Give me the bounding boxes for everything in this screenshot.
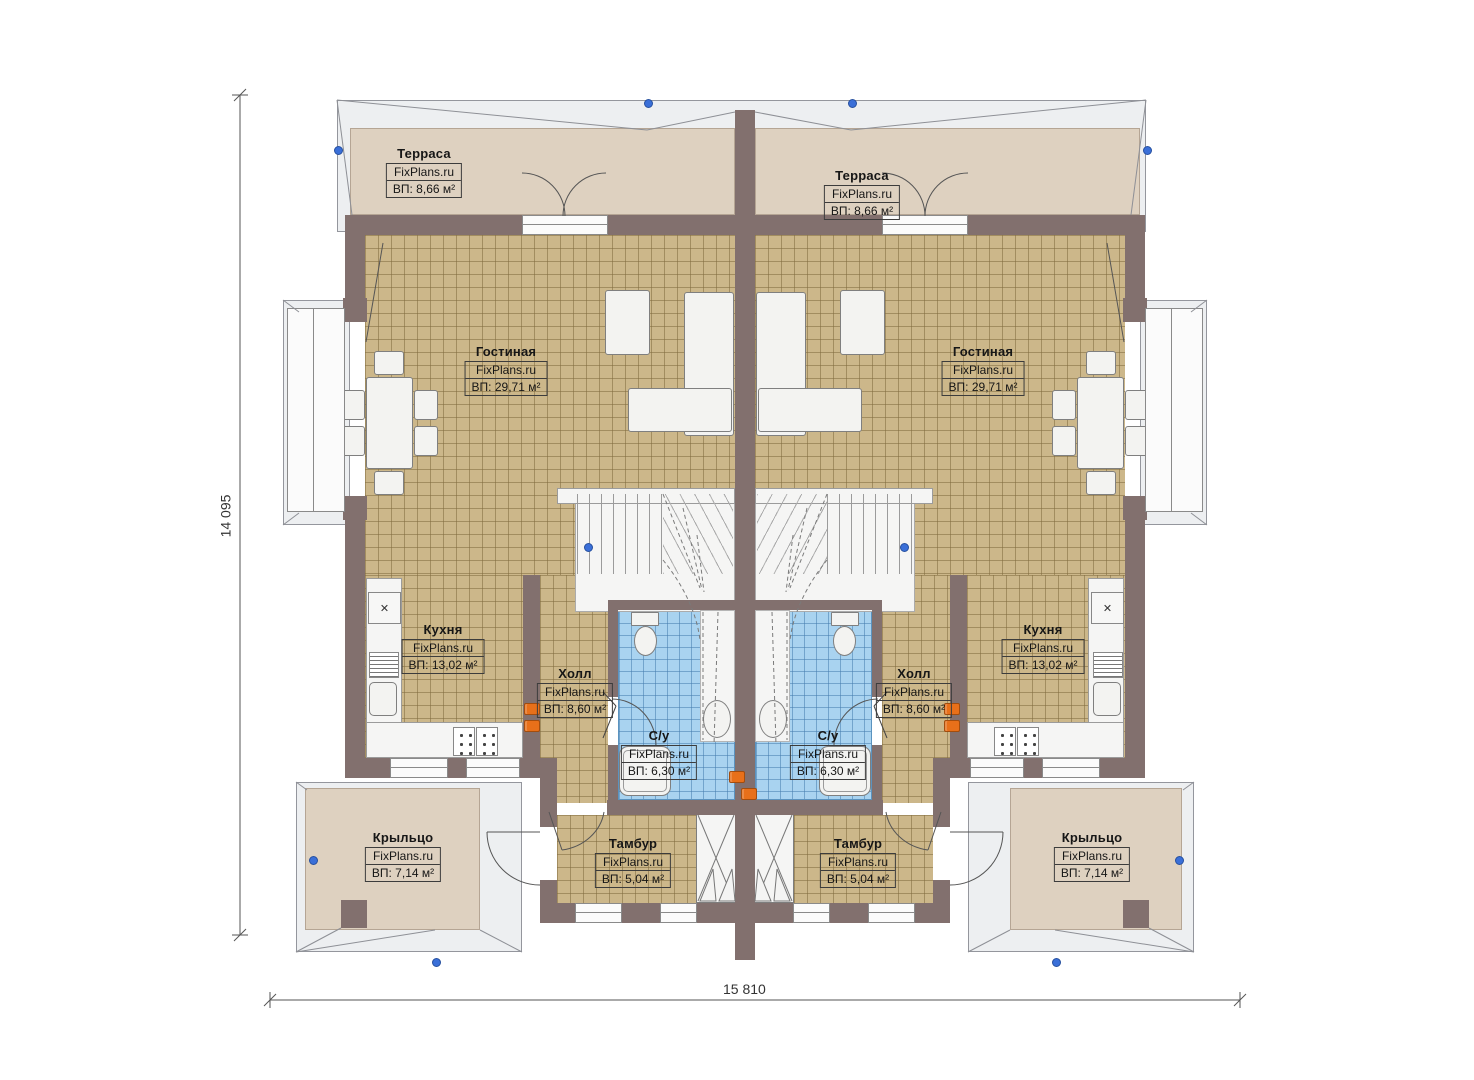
wall-bottom-kitchen-right xyxy=(1100,758,1145,778)
room-area: ВП: 8,60 м² xyxy=(538,701,612,717)
room-label-living-left: Гостиная FixPlans.ru ВП: 29,71 м² xyxy=(465,344,548,396)
watermark: FixPlans.ru xyxy=(622,746,696,763)
washbasin-icon xyxy=(703,700,731,738)
chair xyxy=(1086,471,1116,495)
room-label-porch-right: Крыльцо FixPlans.ru ВП: 7,14 м² xyxy=(1054,830,1130,882)
room-label-vestibule-right: Тамбур FixPlans.ru ВП: 5,04 м² xyxy=(820,836,896,888)
coffee-table xyxy=(840,290,885,355)
outlet-icon xyxy=(729,771,745,783)
wall-vestibule-side-left xyxy=(540,778,557,827)
watermark: FixPlans.ru xyxy=(943,362,1024,379)
watermark: FixPlans.ru xyxy=(387,164,461,181)
kitchen-window-right-1 xyxy=(970,758,1024,778)
room-area: ВП: 6,30 м² xyxy=(791,763,865,779)
watermark: FixPlans.ru xyxy=(825,186,899,203)
toilet-icon xyxy=(833,626,856,656)
dining-table xyxy=(1077,377,1124,469)
wall-hall-vestibule-left xyxy=(607,800,736,815)
terrace-door-sill-left xyxy=(522,215,608,235)
room-area: ВП: 6,30 м² xyxy=(622,763,696,779)
node-marker xyxy=(848,99,857,108)
kitchen-sink-icon xyxy=(369,682,397,716)
room-name: Холл xyxy=(537,666,613,681)
room-name: Кухня xyxy=(1002,622,1085,637)
room-label-kitchen-right: Кухня FixPlans.ru ВП: 13,02 м² xyxy=(1002,622,1085,674)
watermark: FixPlans.ru xyxy=(366,848,440,865)
chair xyxy=(1052,426,1076,456)
room-label-wc-right: С/у FixPlans.ru ВП: 6,30 м² xyxy=(790,728,866,780)
dimension-label-width: 15 810 xyxy=(723,981,766,997)
room-name: Тамбур xyxy=(595,836,671,851)
chair xyxy=(374,471,404,495)
stair-winders-right xyxy=(757,494,827,574)
outlet-icon xyxy=(524,720,540,732)
room-area: ВП: 8,66 м² xyxy=(825,203,899,219)
watermark: FixPlans.ru xyxy=(538,684,612,701)
stove-icon xyxy=(453,727,475,756)
room-label-terrace-right: Терраса FixPlans.ru ВП: 8,66 м² xyxy=(824,168,900,220)
room-name: Гостиная xyxy=(942,344,1025,359)
wall-left xyxy=(345,498,365,778)
room-area: ВП: 8,66 м² xyxy=(387,181,461,197)
outlet-icon xyxy=(741,788,757,800)
bay-wall-stub xyxy=(1123,496,1147,520)
room-name: Гостиная xyxy=(465,344,548,359)
watermark: FixPlans.ru xyxy=(1003,640,1084,657)
kitchen-counter-left-band xyxy=(366,722,523,758)
chair xyxy=(1052,390,1076,420)
washbasin-icon xyxy=(759,700,787,738)
room-label-kitchen-left: Кухня FixPlans.ru ВП: 13,02 м² xyxy=(402,622,485,674)
room-label-hall-right: Холл FixPlans.ru ВП: 8,60 м² xyxy=(876,666,952,718)
kitchen-window-right-2 xyxy=(1042,758,1100,778)
node-marker xyxy=(900,543,909,552)
chair xyxy=(1086,351,1116,375)
wall-party-center xyxy=(735,110,755,960)
wall-bottom-kitchen-left xyxy=(345,758,390,778)
sofa xyxy=(628,388,732,432)
room-area: ВП: 13,02 м² xyxy=(1003,657,1084,673)
vestibule-window-right-2 xyxy=(868,903,915,923)
chair xyxy=(414,426,438,456)
vestibule-window-right-1 xyxy=(793,903,830,923)
room-area: ВП: 7,14 м² xyxy=(366,865,440,881)
chair xyxy=(374,351,404,375)
kitchen-counter-right-band xyxy=(967,722,1124,758)
room-area: ВП: 13,02 м² xyxy=(403,657,484,673)
closet-left xyxy=(696,813,736,903)
porch-post-right xyxy=(1123,900,1149,928)
room-area: ВП: 29,71 м² xyxy=(466,379,547,395)
bay-wall-stub xyxy=(343,298,367,322)
node-marker xyxy=(1143,146,1152,155)
bay-wall-stub xyxy=(1123,298,1147,322)
room-label-hall-left: Холл FixPlans.ru ВП: 8,60 м² xyxy=(537,666,613,718)
watermark: FixPlans.ru xyxy=(596,854,670,871)
node-marker xyxy=(309,856,318,865)
wall-bottom-kitchen-left xyxy=(520,758,557,778)
outlet-icon xyxy=(944,720,960,732)
node-marker xyxy=(584,543,593,552)
room-name: Кухня xyxy=(402,622,485,637)
room-label-living-right: Гостиная FixPlans.ru ВП: 29,71 м² xyxy=(942,344,1025,396)
stove-icon xyxy=(1017,727,1039,756)
toilet-icon xyxy=(831,612,859,626)
room-name: С/у xyxy=(790,728,866,743)
wall-right xyxy=(1125,498,1145,778)
watermark: FixPlans.ru xyxy=(1055,848,1129,865)
room-label-vestibule-left: Тамбур FixPlans.ru ВП: 5,04 м² xyxy=(595,836,671,888)
watermark: FixPlans.ru xyxy=(821,854,895,871)
node-marker xyxy=(432,958,441,967)
stair-winders-left xyxy=(663,494,733,574)
floor-plan-canvas: ✕ ✕ xyxy=(0,0,1474,1080)
sofa xyxy=(758,388,862,432)
wall-bottom-kitchen-right xyxy=(933,758,970,778)
wall-top xyxy=(345,215,522,235)
wall-vestibule-bottom xyxy=(915,903,950,923)
terrace-floor-right xyxy=(755,128,1140,215)
dishwasher-icon xyxy=(1093,652,1123,678)
porch-post-left xyxy=(341,900,367,928)
chair xyxy=(414,390,438,420)
wall-top xyxy=(968,215,1145,235)
fridge-x-glyph: ✕ xyxy=(380,602,389,615)
wall-vestibule-bottom xyxy=(622,903,660,923)
toilet-icon xyxy=(634,626,657,656)
vestibule-window-left-1 xyxy=(575,903,622,923)
wall-core-top xyxy=(608,600,882,610)
watermark: FixPlans.ru xyxy=(466,362,547,379)
room-name: С/у xyxy=(621,728,697,743)
coffee-table xyxy=(605,290,650,355)
kitchen-window-left-1 xyxy=(390,758,448,778)
watermark: FixPlans.ru xyxy=(791,746,865,763)
room-name: Терраса xyxy=(824,168,900,183)
wall-vestibule-side-right xyxy=(933,778,950,827)
vestibule-window-left-2 xyxy=(660,903,697,923)
room-label-terrace-left: Терраса FixPlans.ru ВП: 8,66 м² xyxy=(386,146,462,198)
fridge-x-glyph: ✕ xyxy=(1103,602,1112,615)
room-area: ВП: 8,60 м² xyxy=(877,701,951,717)
room-name: Холл xyxy=(876,666,952,681)
room-area: ВП: 5,04 м² xyxy=(821,871,895,887)
kitchen-window-left-2 xyxy=(466,758,520,778)
node-marker xyxy=(1052,958,1061,967)
bay-window-left xyxy=(287,308,345,512)
fridge-icon: ✕ xyxy=(1091,592,1124,624)
node-marker xyxy=(644,99,653,108)
room-area: ВП: 5,04 м² xyxy=(596,871,670,887)
watermark: FixPlans.ru xyxy=(877,684,951,701)
wall-vestibule-bottom xyxy=(830,903,868,923)
room-label-porch-left: Крыльцо FixPlans.ru ВП: 7,14 м² xyxy=(365,830,441,882)
room-area: ВП: 29,71 м² xyxy=(943,379,1024,395)
wall-kitchen-hall-right xyxy=(950,575,967,778)
room-name: Терраса xyxy=(386,146,462,161)
room-area: ВП: 7,14 м² xyxy=(1055,865,1129,881)
fridge-icon: ✕ xyxy=(368,592,401,624)
wall-bottom-kitchen-left xyxy=(448,758,466,778)
wall-core-left xyxy=(608,745,618,805)
bay-wall-stub xyxy=(343,496,367,520)
bay-window-right xyxy=(1145,308,1203,512)
toilet-icon xyxy=(631,612,659,626)
kitchen-sink-icon xyxy=(1093,682,1121,716)
wall-vestibule-bottom xyxy=(540,903,575,923)
dishwasher-icon xyxy=(369,652,399,678)
watermark: FixPlans.ru xyxy=(403,640,484,657)
stove-icon xyxy=(476,727,498,756)
wall-vestibule-bottom xyxy=(697,903,793,923)
stove-icon xyxy=(994,727,1016,756)
dimension-label-height: 14 095 xyxy=(217,495,233,538)
room-name: Тамбур xyxy=(820,836,896,851)
stair-treads-left xyxy=(577,494,663,574)
room-name: Крыльцо xyxy=(365,830,441,845)
wall-hall-vestibule-right xyxy=(754,800,883,815)
stair-treads-right xyxy=(827,494,913,574)
closet-right xyxy=(754,813,794,903)
wall-bottom-kitchen-right xyxy=(1024,758,1042,778)
node-marker xyxy=(334,146,343,155)
room-label-wc-left: С/у FixPlans.ru ВП: 6,30 м² xyxy=(621,728,697,780)
wall-core-right xyxy=(872,745,882,805)
room-name: Крыльцо xyxy=(1054,830,1130,845)
node-marker xyxy=(1175,856,1184,865)
dining-table xyxy=(366,377,413,469)
